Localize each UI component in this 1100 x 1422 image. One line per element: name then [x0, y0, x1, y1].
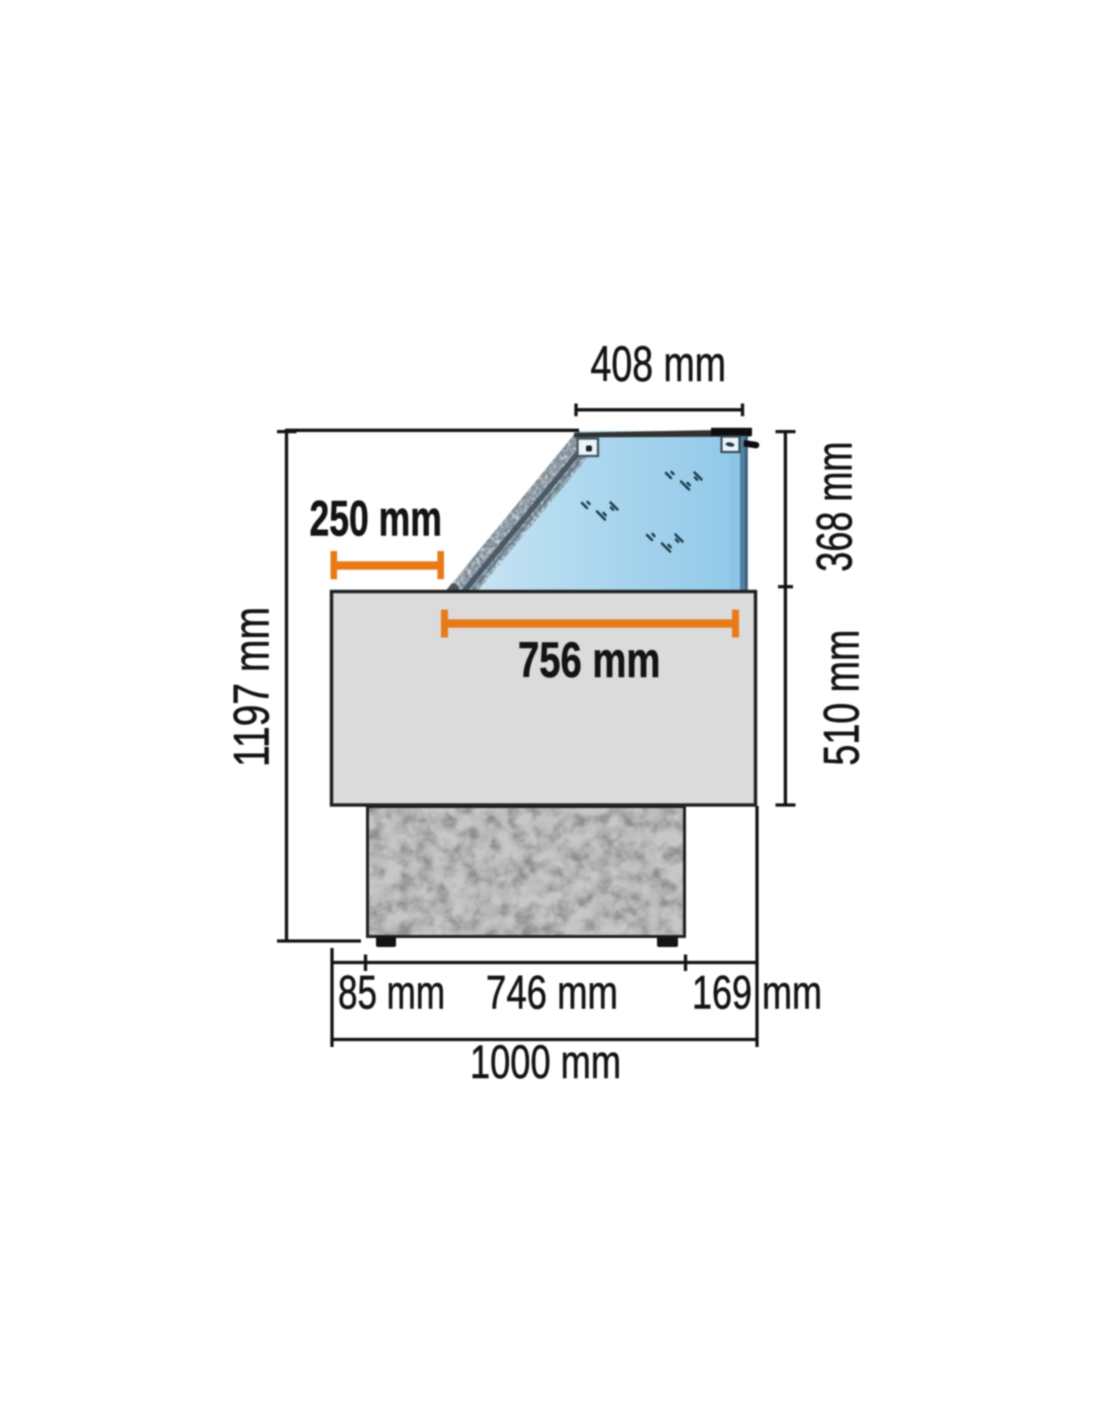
svg-text:1000 mm: 1000 mm: [470, 1035, 621, 1088]
svg-text:510 mm: 510 mm: [814, 630, 870, 766]
svg-text:169 mm: 169 mm: [692, 966, 822, 1019]
svg-text:368 mm: 368 mm: [807, 442, 863, 572]
svg-text:756 mm: 756 mm: [518, 632, 660, 688]
svg-text:746 mm: 746 mm: [486, 966, 618, 1019]
svg-text:85 mm: 85 mm: [338, 966, 445, 1019]
svg-text:250 mm: 250 mm: [310, 491, 442, 547]
svg-text:1197 mm: 1197 mm: [224, 607, 280, 767]
svg-text:408 mm: 408 mm: [591, 336, 727, 392]
